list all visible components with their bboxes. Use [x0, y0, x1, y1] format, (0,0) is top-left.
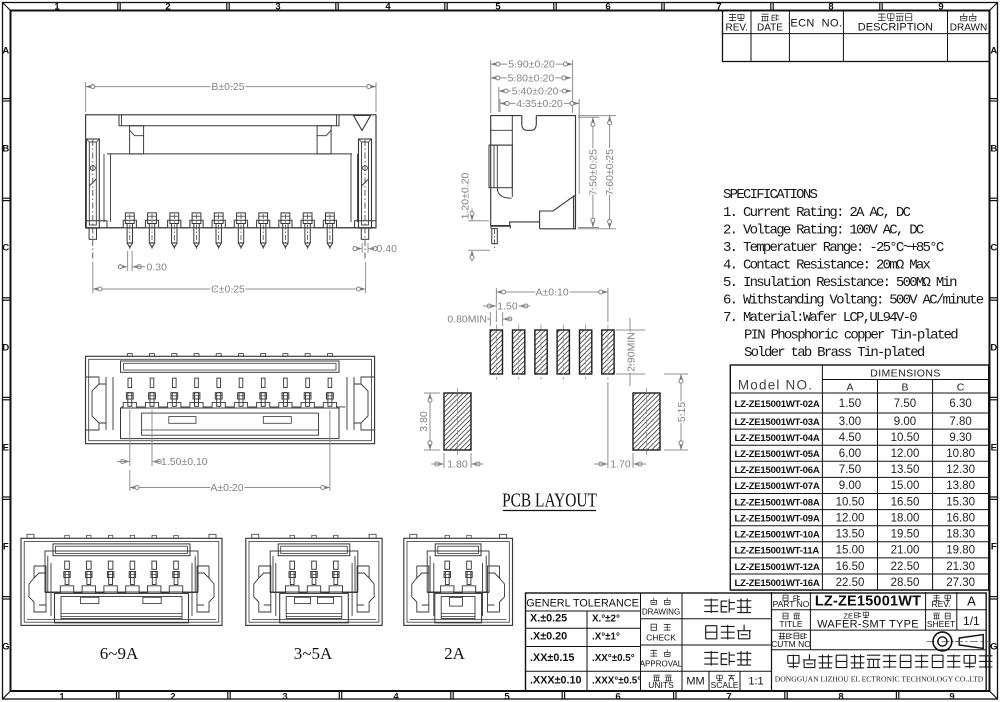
svg-text:2. Voltage Rating: 100V AC, DC: 2. Voltage Rating: 100V AC, DC — [723, 223, 924, 239]
svg-text:SCALE: SCALE — [711, 680, 739, 690]
svg-text:PART NO: PART NO — [773, 599, 810, 609]
svg-text:6.30: 6.30 — [949, 398, 971, 410]
svg-text:DONGGUAN LIZHOU EL ECTRONIC TE: DONGGUAN LIZHOU EL ECTRONIC TECHNOLOGY C… — [775, 675, 984, 684]
svg-text:C: C — [990, 243, 997, 254]
svg-text:G: G — [2, 642, 9, 653]
svg-text:LZ-ZE15001WT-11A: LZ-ZE15001WT-11A — [735, 546, 820, 557]
svg-text:GENERL TOLERANCE: GENERL TOLERANCE — [526, 598, 639, 610]
svg-text:CHECK: CHECK — [646, 633, 676, 643]
svg-text:5. Insulation Resistance: 500M: 5. Insulation Resistance: 500MΩ Min — [723, 275, 957, 291]
svg-text:REV.: REV. — [931, 599, 950, 609]
svg-text:DESCRIPTION: DESCRIPTION — [858, 22, 933, 34]
svg-text:F: F — [991, 542, 997, 553]
svg-text:10.50: 10.50 — [891, 432, 920, 444]
svg-text:2A: 2A — [444, 644, 466, 663]
svg-text:28.50: 28.50 — [891, 577, 920, 589]
svg-text:1:1: 1:1 — [748, 676, 763, 688]
svg-text:15.00: 15.00 — [891, 480, 920, 492]
svg-text:16.50: 16.50 — [891, 496, 920, 508]
svg-text:15.00: 15.00 — [836, 545, 865, 557]
svg-text:12.30: 12.30 — [946, 464, 975, 476]
svg-text:19.80: 19.80 — [946, 545, 975, 557]
svg-text:19.50: 19.50 — [891, 529, 920, 541]
svg-text:E: E — [991, 443, 997, 454]
svg-text:D: D — [990, 343, 997, 354]
svg-text:Model NO.: Model NO. — [738, 378, 813, 393]
svg-text:F: F — [3, 542, 9, 553]
svg-text:ECN NO.: ECN NO. — [790, 18, 842, 30]
svg-text:4: 4 — [393, 692, 399, 702]
svg-text:0.30: 0.30 — [147, 261, 168, 273]
svg-text:G: G — [990, 642, 997, 653]
svg-text:0.40: 0.40 — [377, 243, 398, 255]
svg-text:3: 3 — [282, 692, 287, 702]
svg-text:1.70: 1.70 — [610, 459, 631, 471]
svg-text:6: 6 — [615, 692, 620, 702]
svg-text:LZ-ZE15001WT-05A: LZ-ZE15001WT-05A — [735, 449, 820, 460]
svg-text:5.40±0.20: 5.40±0.20 — [512, 86, 559, 98]
svg-text:LZ-ZE15001WT-08A: LZ-ZE15001WT-08A — [735, 497, 820, 508]
svg-text:PIN Phosphoric copper Tin-plat: PIN Phosphoric copper Tin-plated — [744, 328, 958, 344]
svg-text:C±0.25: C±0.25 — [211, 284, 245, 296]
svg-text:9.00: 9.00 — [839, 480, 861, 492]
svg-text:1.20±0.20: 1.20±0.20 — [460, 173, 472, 220]
svg-text:3~5A: 3~5A — [294, 644, 333, 663]
svg-text:2: 2 — [165, 2, 170, 13]
svg-text:8: 8 — [838, 692, 843, 702]
svg-text:21.00: 21.00 — [891, 545, 920, 557]
svg-text:1: 1 — [54, 2, 60, 13]
svg-text:REV.: REV. — [725, 23, 747, 34]
svg-text:1/1: 1/1 — [963, 614, 980, 628]
svg-text:.XX°±0.5°: .XX°±0.5° — [592, 653, 635, 664]
svg-text:12.00: 12.00 — [891, 448, 920, 460]
svg-text:7.80: 7.80 — [949, 416, 971, 428]
svg-text:13.50: 13.50 — [891, 464, 920, 476]
svg-text:7.60±0.25: 7.60±0.25 — [604, 149, 616, 196]
svg-text:15.30: 15.30 — [946, 496, 975, 508]
svg-text:13.50: 13.50 — [836, 529, 865, 541]
svg-text:.XXX±0.10: .XXX±0.10 — [530, 675, 582, 687]
svg-text:MM: MM — [686, 676, 704, 688]
svg-text:4. Contact Resistance: 20mΩ Ma: 4. Contact Resistance: 20mΩ Max — [723, 258, 931, 274]
svg-text:6~9A: 6~9A — [100, 644, 139, 663]
svg-text:10.80: 10.80 — [946, 448, 975, 460]
svg-text:7.50: 7.50 — [839, 464, 861, 476]
svg-text:LZ-ZE15001WT-07A: LZ-ZE15001WT-07A — [735, 481, 820, 492]
svg-text:1. Current Rating: 2A AC, DC: 1. Current Rating: 2A AC, DC — [723, 205, 911, 221]
svg-text:16.50: 16.50 — [836, 561, 865, 573]
svg-text:22.50: 22.50 — [891, 561, 920, 573]
svg-text:LZ-ZE15001WT-04A: LZ-ZE15001WT-04A — [735, 433, 820, 444]
svg-text:5.90±0.20: 5.90±0.20 — [508, 59, 555, 71]
svg-text:PCB LAYOUT: PCB LAYOUT — [502, 489, 597, 511]
svg-text:0.80MIN: 0.80MIN — [447, 314, 487, 326]
svg-text:7.50±0.25: 7.50±0.25 — [588, 149, 600, 196]
svg-text:DRAWN: DRAWN — [950, 23, 987, 34]
svg-text:16.80: 16.80 — [946, 513, 975, 525]
svg-text:LZ-ZE15001WT-09A: LZ-ZE15001WT-09A — [735, 514, 820, 525]
svg-text:9: 9 — [949, 692, 954, 702]
svg-text:LZ-ZE15001WT: LZ-ZE15001WT — [815, 594, 921, 610]
svg-text:A: A — [967, 594, 976, 609]
svg-text:D: D — [2, 343, 9, 354]
svg-text:9.30: 9.30 — [949, 432, 971, 444]
svg-text:A: A — [990, 46, 997, 57]
svg-text:LZ-ZE15001WT-10A: LZ-ZE15001WT-10A — [735, 530, 820, 541]
svg-text:3. Temperatuer Range: -25°C~+8: 3. Temperatuer Range: -25°C~+85°C — [723, 240, 944, 256]
svg-text:10.50: 10.50 — [836, 496, 865, 508]
svg-text:7: 7 — [726, 692, 731, 702]
svg-text:6.00: 6.00 — [839, 448, 861, 460]
svg-text:7: 7 — [716, 2, 721, 13]
svg-text:C: C — [2, 243, 9, 254]
svg-text:LZ-ZE15001WT-02A: LZ-ZE15001WT-02A — [735, 399, 820, 410]
svg-text:B: B — [2, 144, 9, 155]
svg-text:22.50: 22.50 — [836, 577, 865, 589]
svg-text:4.35±0.20: 4.35±0.20 — [516, 98, 563, 110]
svg-text:6. Withstanding Voltang: 500V: 6. Withstanding Voltang: 500V AC/minute — [723, 293, 984, 309]
svg-text:X.°±2°: X.°±2° — [592, 614, 620, 625]
svg-text:18.30: 18.30 — [946, 529, 975, 541]
svg-text:UNITS: UNITS — [648, 680, 674, 690]
svg-text:5: 5 — [495, 2, 501, 13]
svg-text:.X±0.20: .X±0.20 — [530, 631, 567, 643]
svg-text:E: E — [3, 443, 9, 454]
svg-text:7.50: 7.50 — [894, 398, 916, 410]
svg-text:B±0.25: B±0.25 — [211, 81, 244, 93]
svg-text:LZ-ZE15001WT-03A: LZ-ZE15001WT-03A — [735, 417, 820, 428]
svg-text:2.90MIN: 2.90MIN — [626, 332, 638, 372]
svg-text:13.80: 13.80 — [946, 480, 975, 492]
svg-text:SHEET: SHEET — [927, 619, 955, 629]
svg-text:5: 5 — [504, 692, 510, 702]
svg-text:X.±0.25: X.±0.25 — [530, 613, 567, 625]
svg-text:12.00: 12.00 — [836, 513, 865, 525]
svg-text:1.50: 1.50 — [839, 398, 861, 410]
svg-text:27.30: 27.30 — [946, 577, 975, 589]
svg-text:SPECIFICATIONS: SPECIFICATIONS — [723, 187, 817, 203]
svg-text:1.50: 1.50 — [497, 301, 518, 313]
svg-text:9.00: 9.00 — [894, 416, 916, 428]
svg-text:3.00: 3.00 — [839, 416, 861, 428]
svg-text:4: 4 — [385, 2, 391, 13]
svg-text:A: A — [2, 46, 9, 57]
svg-text:B: B — [990, 144, 997, 155]
svg-text:5.15: 5.15 — [676, 402, 688, 423]
svg-text:DIMENSIONS: DIMENSIONS — [870, 368, 941, 380]
svg-text:DRAWING: DRAWING — [642, 608, 680, 617]
svg-text:A±0.20: A±0.20 — [210, 482, 243, 494]
svg-text:LZ-ZE15001WT-12A: LZ-ZE15001WT-12A — [735, 562, 820, 573]
svg-text:1.80: 1.80 — [447, 459, 468, 471]
svg-text:Solder tab Brass Tin-plated: Solder tab Brass Tin-plated — [744, 345, 925, 361]
svg-text:5.80±0.20: 5.80±0.20 — [508, 73, 555, 85]
svg-text:3.80: 3.80 — [418, 411, 430, 432]
svg-text:2: 2 — [170, 692, 175, 702]
svg-text:A±0.10: A±0.10 — [535, 287, 568, 299]
svg-text:A: A — [846, 381, 853, 393]
svg-text:.XX±0.15: .XX±0.15 — [530, 652, 574, 664]
svg-text:WAFER-SMT TYPE: WAFER-SMT TYPE — [817, 618, 919, 630]
svg-text:7. Material:Wafer LCP,UL94V-0: 7. Material:Wafer LCP,UL94V-0 — [723, 310, 917, 326]
svg-text:B: B — [901, 381, 908, 393]
svg-text:4.50: 4.50 — [839, 432, 861, 444]
svg-text:LZ-ZE15001WT-16A: LZ-ZE15001WT-16A — [735, 578, 820, 589]
svg-text:C: C — [957, 381, 965, 393]
svg-text:DATE: DATE — [757, 23, 783, 34]
svg-text:APPROVAL: APPROVAL — [640, 660, 683, 669]
svg-text:.X°±1°: .X°±1° — [592, 632, 620, 643]
svg-text:21.30: 21.30 — [946, 561, 975, 573]
svg-text:3: 3 — [275, 2, 280, 13]
svg-text:TITLE: TITLE — [779, 619, 802, 629]
svg-text:LZ-ZE15001WT-06A: LZ-ZE15001WT-06A — [735, 465, 820, 476]
svg-text:1.50±0.10: 1.50±0.10 — [161, 456, 208, 468]
svg-text:6: 6 — [605, 2, 610, 13]
svg-text:1: 1 — [59, 692, 65, 702]
svg-text:18.00: 18.00 — [891, 513, 920, 525]
svg-text:.XXX°±0.5°: .XXX°±0.5° — [592, 676, 641, 687]
svg-text:CUTM NO: CUTM NO — [771, 639, 811, 649]
